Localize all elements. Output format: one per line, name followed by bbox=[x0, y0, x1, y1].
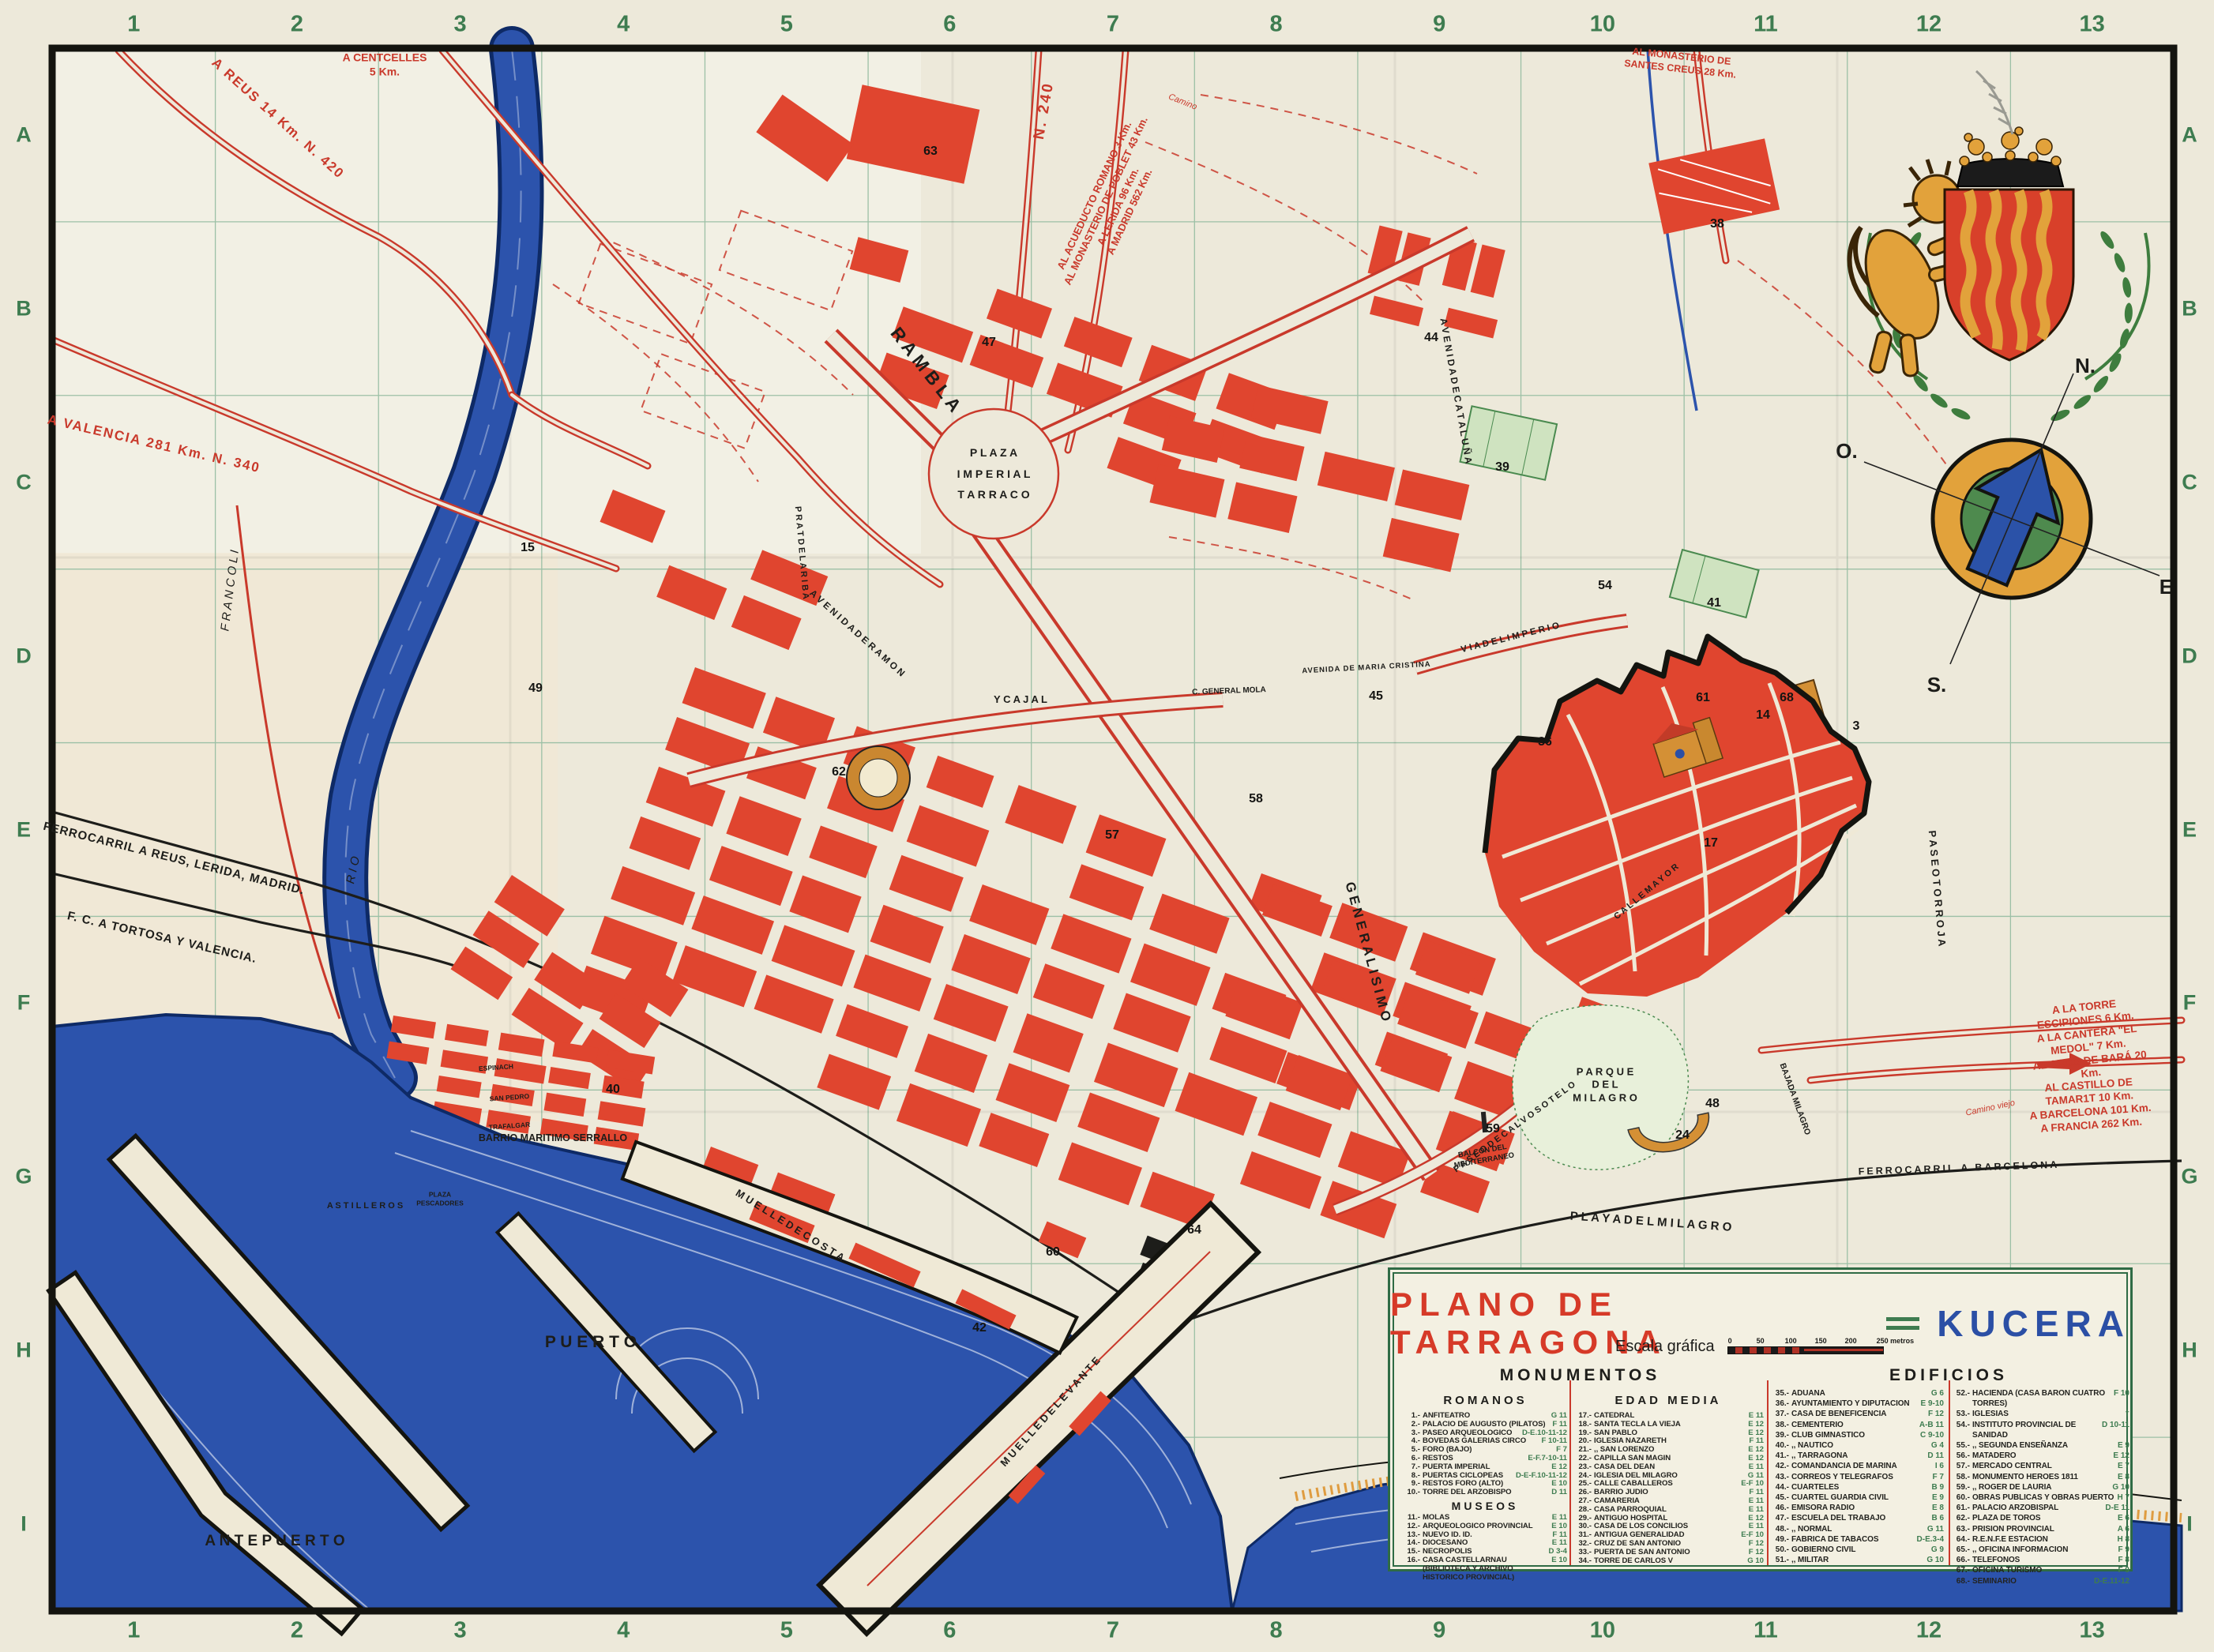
legend-item: 42.-COMANDANCIA DE MARINAI 6 bbox=[1772, 1461, 1944, 1471]
legend-item: 2.-PALACIO DE AUGUSTO (PILATOS)F 11 bbox=[1403, 1421, 1567, 1429]
legend-item-name: SEMINARIO bbox=[1972, 1576, 2091, 1586]
legend-item: 16.-CASA CASTELLARNAU (BIBLIOTECA Y ARCH… bbox=[1403, 1556, 1567, 1582]
legend-item-number: 53.- bbox=[1953, 1409, 1970, 1419]
legend-item-name: TORRE DE CARLOS V bbox=[1594, 1557, 1744, 1566]
legend-item-number: 16.- bbox=[1403, 1556, 1420, 1565]
legend-item-number: 58.- bbox=[1953, 1472, 1970, 1482]
legend-item: 23.-CASA DEL DEANE 11 bbox=[1574, 1463, 1764, 1472]
legend-item: 40.-,, NAUTICOG 4 bbox=[1772, 1440, 1944, 1451]
compass-west-label: O. bbox=[1836, 439, 1857, 463]
legend-item-gridref: G 10 bbox=[1747, 1557, 1764, 1566]
legend-item-number: 38.- bbox=[1772, 1420, 1789, 1430]
legend-item: 57.-MERCADO CENTRALE 7 bbox=[1953, 1461, 2129, 1471]
legend-item-number: 56.- bbox=[1953, 1451, 1970, 1461]
legend-item-number: 67.- bbox=[1953, 1565, 1970, 1575]
scale-tick: 100 bbox=[1785, 1337, 1797, 1345]
legend-item: 35.-ADUANAG 6 bbox=[1772, 1388, 1944, 1399]
column-edad-media: 17.-CATEDRALE 1118.-SANTA TECLA LA VIEJA… bbox=[1574, 1412, 1764, 1565]
legend-item-gridref: E 12 bbox=[1551, 1463, 1567, 1472]
legend-item-number: 37.- bbox=[1772, 1409, 1789, 1419]
legend-item-number: 62.- bbox=[1953, 1513, 1970, 1523]
legend-item: 54.-INSTITUTO PROVINCIAL DE SANIDADD 10-… bbox=[1953, 1420, 2129, 1440]
legend-item-number: 49.- bbox=[1772, 1534, 1789, 1545]
legend-item-gridref: G 6 bbox=[1931, 1388, 1944, 1399]
legend-item-number: 40.- bbox=[1772, 1440, 1789, 1451]
legend-item-gridref: F 12 bbox=[1928, 1409, 1944, 1419]
legend-item-gridref: † bbox=[2125, 1409, 2129, 1419]
legend-item-gridref: D-E.11-12 bbox=[2094, 1576, 2129, 1586]
legend-item-number: 51.- bbox=[1772, 1555, 1789, 1565]
legend-item-gridref: F 10 bbox=[2114, 1388, 2129, 1399]
legend-divider bbox=[1949, 1380, 1950, 1565]
scale-tick: 150 bbox=[1815, 1337, 1827, 1345]
plaza-imperial-circle bbox=[929, 409, 1058, 539]
legend-item-gridref: F 12 bbox=[1749, 1549, 1764, 1557]
legend-item-gridref: E 6 bbox=[2118, 1513, 2129, 1523]
legend-item-gridref: H 7 bbox=[2117, 1492, 2129, 1503]
legend-item-name: PUERTA IMPERIAL bbox=[1423, 1463, 1548, 1472]
legend-item: 38.-CEMENTERIOA-B 11 bbox=[1772, 1420, 1944, 1430]
legend-divider bbox=[1569, 1380, 1571, 1565]
legend-item: 12.-ARQUEOLOGICO PROVINCIALE 10 bbox=[1403, 1522, 1567, 1531]
bullring-icon bbox=[847, 746, 910, 809]
legend-item-gridref: E 10 bbox=[1551, 1556, 1567, 1565]
legend-item: 62.-PLAZA DE TOROSE 6 bbox=[1953, 1513, 2129, 1523]
legend-item: 56.-MATADEROE 12 bbox=[1953, 1451, 2129, 1461]
compass-south-label: S. bbox=[1927, 673, 1947, 696]
legend-item-gridref: B 9 bbox=[1931, 1482, 1944, 1492]
legend-item: 44.-CUARTELESB 9 bbox=[1772, 1482, 1944, 1492]
legend-item-number: 57.- bbox=[1953, 1461, 1970, 1471]
legend-item-name: CASA PARROQUIAL bbox=[1594, 1506, 1746, 1515]
legend-item-name: TELEFONOS bbox=[1972, 1555, 2115, 1565]
legend-item-name: MONUMENTO HEROES 1811 bbox=[1972, 1472, 2114, 1482]
legend-item-number: 43.- bbox=[1772, 1472, 1789, 1482]
legend-item-number: 10.- bbox=[1403, 1489, 1420, 1497]
legend-item: 50.-GOBIERNO CIVILG 9 bbox=[1772, 1545, 1944, 1555]
legend-item-name: ,, TARRAGONA bbox=[1791, 1451, 1924, 1461]
title-kucera: KUCERA bbox=[1937, 1302, 2130, 1345]
legend-item-number: 60.- bbox=[1953, 1492, 1970, 1503]
legend-item-name: COMANDANCIA DE MARINA bbox=[1791, 1461, 1932, 1471]
legend-item: 60.-OBRAS PUBLICAS Y OBRAS PUERTOH 7 bbox=[1953, 1492, 2129, 1503]
legend-item: 47.-ESCUELA DEL TRABAJOB 6 bbox=[1772, 1513, 1944, 1523]
legend-item-number: 28.- bbox=[1574, 1506, 1592, 1515]
legend-item: 18.-SANTA TECLA LA VIEJAE 12 bbox=[1574, 1421, 1764, 1429]
legend-item: 43.-CORREOS Y TELEGRAFOSF 7 bbox=[1772, 1472, 1944, 1482]
legend-item: 67.-OFICINA TURISMOF 9 bbox=[1953, 1565, 2129, 1575]
legend-item-name: CORREOS Y TELEGRAFOS bbox=[1791, 1472, 1930, 1482]
legend-item-number: 59.- bbox=[1953, 1482, 1970, 1492]
legend-item-number: 66.- bbox=[1953, 1555, 1970, 1565]
legend-item-gridref: E 12 bbox=[2113, 1451, 2129, 1461]
column-edificios-a: 35.-ADUANAG 636.-AYUNTAMIENTO Y DIPUTACI… bbox=[1772, 1388, 1944, 1565]
legend-item-name: PLAZA DE TOROS bbox=[1972, 1513, 2114, 1523]
legend-item: 68.-SEMINARIOD-E.11-12 bbox=[1953, 1576, 2129, 1586]
legend-item-number: 50.- bbox=[1772, 1545, 1789, 1555]
legend-item-gridref: E 11 bbox=[1749, 1506, 1764, 1515]
legend-item-name: ,, SEGUNDA ENSEÑANZA bbox=[1972, 1440, 2114, 1451]
legend-item-name: INSTITUTO PROVINCIAL DE SANIDAD bbox=[1972, 1420, 2099, 1440]
legend-item-gridref: D 11 bbox=[1551, 1489, 1567, 1497]
legend-item-name: ,, ROGER DE LAURIA bbox=[1972, 1482, 2109, 1492]
legend-item-name: PALACIO DE AUGUSTO (PILATOS) bbox=[1423, 1421, 1549, 1429]
legend-item: 36.-AYUNTAMIENTO Y DIPUTACIONE 9-10 bbox=[1772, 1399, 1944, 1409]
legend-item-number: 39.- bbox=[1772, 1430, 1789, 1440]
legend-item-number: 47.- bbox=[1772, 1513, 1789, 1523]
legend-item-gridref: E 10 bbox=[1551, 1522, 1567, 1531]
legend-item-number: 65.- bbox=[1953, 1545, 1970, 1555]
header-edad-media: EDAD MEDIA bbox=[1574, 1394, 1762, 1407]
legend-item-gridref: E 12 bbox=[1748, 1421, 1764, 1429]
legend-item: 66.-TELEFONOSF 8 bbox=[1953, 1555, 2129, 1565]
legend-item-gridref: G 9 bbox=[1931, 1545, 1944, 1555]
legend-item: 53.-IGLESIAS† bbox=[1953, 1409, 2129, 1419]
legend-item-name: ADUANA bbox=[1791, 1388, 1928, 1399]
legend-item-number: 52.- bbox=[1953, 1388, 1970, 1399]
legend-item-number: 18.- bbox=[1574, 1421, 1592, 1429]
legend-item: 49.-FABRICA DE TABACOSD-E.3-4 bbox=[1772, 1534, 1944, 1545]
legend-item-number: 48.- bbox=[1772, 1524, 1789, 1534]
legend-item-gridref: G 10 bbox=[2112, 1482, 2129, 1492]
legend-item-name: PUERTA DE SAN ANTONIO bbox=[1594, 1549, 1746, 1557]
legend-item-number: 61.- bbox=[1953, 1503, 1970, 1513]
legend-item: 41.-,, TARRAGONAD 11 bbox=[1772, 1451, 1944, 1461]
legend-item-name: HACIENDA (CASA BARON CUATRO TORRES) bbox=[1972, 1388, 2111, 1409]
legend-item: 64.-R.E.N.F.E ESTACIONH 8 bbox=[1953, 1534, 2129, 1545]
legend-item-gridref: D-E 11 bbox=[2105, 1503, 2129, 1513]
legend-item-name: PRISION PROVINCIAL bbox=[1972, 1524, 2114, 1534]
legend-item: 51.-,, MILITARG 10 bbox=[1772, 1555, 1944, 1565]
legend-item-name: CLUB GIMNASTICO bbox=[1791, 1430, 1917, 1440]
legend-item-number: 64.- bbox=[1953, 1534, 1970, 1545]
legend-item-gridref: D 11 bbox=[1927, 1451, 1944, 1461]
legend-item-name: PALACIO ARZOBISPAL bbox=[1972, 1503, 2102, 1513]
legend-item-number: 36.- bbox=[1772, 1399, 1789, 1409]
legend-item-number: 12.- bbox=[1403, 1522, 1420, 1531]
legend-item-number: 7.- bbox=[1403, 1463, 1420, 1472]
legend-item-name: SANTA TECLA LA VIEJA bbox=[1594, 1421, 1745, 1429]
legend-item-number: 2.- bbox=[1403, 1421, 1420, 1429]
legend-item-name: ,, MILITAR bbox=[1791, 1555, 1923, 1565]
legend-item-name: CASA CASTELLARNAU (BIBLIOTECA Y ARCHIVO … bbox=[1423, 1556, 1548, 1582]
legend-item-gridref: F 7 bbox=[1933, 1472, 1944, 1482]
legend-item-gridref: I 6 bbox=[1935, 1461, 1944, 1471]
legend-item-name: FABRICA DE TABACOS bbox=[1791, 1534, 1914, 1545]
legend-item-number: 63.- bbox=[1953, 1524, 1970, 1534]
legend-item: 63.-PRISION PROVINCIALA 6 bbox=[1953, 1524, 2129, 1534]
legend-item-name: GOBIERNO CIVIL bbox=[1791, 1545, 1928, 1555]
legend-item-number: 46.- bbox=[1772, 1503, 1789, 1513]
legend-item: 65.-,, OFICINA INFORMACIONF 9 bbox=[1953, 1545, 2129, 1555]
legend-panel: PLANO DE TARRAGONA KUCERA Escala gráfica… bbox=[1388, 1267, 2133, 1571]
legend-item: 52.-HACIENDA (CASA BARON CUATRO TORRES)F… bbox=[1953, 1388, 2129, 1409]
legend-item-name: OFICINA TURISMO bbox=[1972, 1565, 2115, 1575]
legend-item: 34.-TORRE DE CARLOS VG 10 bbox=[1574, 1557, 1764, 1566]
legend-item-number: 68.- bbox=[1953, 1576, 1970, 1586]
legend-item-gridref: G 11 bbox=[1927, 1524, 1944, 1534]
legend-item-gridref: E 9 bbox=[1932, 1492, 1944, 1503]
legend-item-gridref: A 6 bbox=[2118, 1524, 2129, 1534]
scale-label: Escala gráfica bbox=[1615, 1338, 1715, 1356]
legend-item: 7.-PUERTA IMPERIALE 12 bbox=[1403, 1463, 1567, 1472]
legend-item-name: CUARTEL GUARDIA CIVIL bbox=[1791, 1492, 1929, 1503]
legend-item: 58.-MONUMENTO HEROES 1811E 8 bbox=[1953, 1472, 2129, 1482]
scale-tick: 0 bbox=[1728, 1337, 1732, 1345]
legend-item-name: MATADERO bbox=[1972, 1451, 2110, 1461]
legend-item-name: ,, NAUTICO bbox=[1791, 1440, 1928, 1451]
legend-item-gridref: C 9-10 bbox=[1920, 1430, 1944, 1440]
legend-item-gridref: E 7 bbox=[2118, 1461, 2129, 1471]
legend-item: 59.-,, ROGER DE LAURIAG 10 bbox=[1953, 1482, 2129, 1492]
legend-item-number: 45.- bbox=[1772, 1492, 1789, 1503]
feather-icon bbox=[1976, 71, 2013, 134]
legend-item: 45.-CUARTEL GUARDIA CIVILE 9 bbox=[1772, 1492, 1944, 1503]
legend-item-gridref: D 10-11 bbox=[2102, 1420, 2129, 1430]
legend-item-name: ,, OFICINA INFORMACION bbox=[1972, 1545, 2115, 1555]
scale-tick: 200 bbox=[1845, 1337, 1857, 1345]
legend-item-gridref: F 8 bbox=[2118, 1555, 2129, 1565]
legend-item-name: MERCADO CENTRAL bbox=[1972, 1461, 2114, 1471]
scale-bar: Escala gráfica 0 50 100 150 200 250 metr… bbox=[1615, 1338, 1884, 1356]
legend-item-number: 55.- bbox=[1953, 1440, 1970, 1451]
legend-item-name: TORRE DEL ARZOBISPO bbox=[1423, 1489, 1548, 1497]
title-dash-icon bbox=[1886, 1317, 1919, 1330]
legend-item-name: ESCUELA DEL TRABAJO bbox=[1791, 1513, 1928, 1523]
legend-item-name: R.E.N.F.E ESTACION bbox=[1972, 1534, 2114, 1545]
legend-item: 37.-CASA DE BENEFICENCIAF 12 bbox=[1772, 1409, 1944, 1419]
legend-item-gridref: G 10 bbox=[1926, 1555, 1944, 1565]
legend-item: 10.-TORRE DEL ARZOBISPOD 11 bbox=[1403, 1489, 1567, 1497]
legend-item-name: IGLESIAS bbox=[1972, 1409, 2122, 1419]
legend-item-name: AYUNTAMIENTO Y DIPUTACION bbox=[1791, 1399, 1918, 1409]
legend-divider bbox=[1767, 1380, 1769, 1565]
legend-item-name: CASA DEL DEAN bbox=[1594, 1463, 1746, 1472]
scale-bar-graphic: 0 50 100 150 200 250 metros bbox=[1727, 1346, 1884, 1354]
compass-rose: N. O. E. S. bbox=[1836, 354, 2178, 696]
legend-item: 46.-EMISORA RADIOE 8 bbox=[1772, 1503, 1944, 1513]
legend-item-gridref: F 9 bbox=[2118, 1545, 2129, 1555]
legend-item-number: 33.- bbox=[1574, 1549, 1592, 1557]
map-sheet: N. O. E. S. 1122334455667788991010111112… bbox=[0, 0, 2214, 1652]
legend-item-name: EMISORA RADIO bbox=[1791, 1503, 1929, 1513]
legend-item-number: 41.- bbox=[1772, 1451, 1789, 1461]
coat-of-arms bbox=[1850, 71, 2149, 423]
legend-item: 28.-CASA PARROQUIALE 11 bbox=[1574, 1506, 1764, 1515]
legend-item-number: 23.- bbox=[1574, 1463, 1592, 1472]
header-romanos: ROMANOS bbox=[1404, 1394, 1566, 1407]
legend-item-gridref: H 8 bbox=[2117, 1534, 2129, 1545]
legend-item-gridref: F 11 bbox=[1552, 1421, 1567, 1429]
scale-tick: 250 metros bbox=[1877, 1337, 1915, 1345]
legend-item-number: 54.- bbox=[1953, 1420, 1970, 1430]
legend-item-number: 42.- bbox=[1772, 1461, 1789, 1471]
legend-item-gridref: E 8 bbox=[2118, 1472, 2129, 1482]
scale-tick: 50 bbox=[1757, 1337, 1765, 1345]
legend-item-name: CEMENTERIO bbox=[1791, 1420, 1916, 1430]
legend-item: 55.-,, SEGUNDA ENSEÑANZAE 9 bbox=[1953, 1440, 2129, 1451]
legend-item-gridref: E 9-10 bbox=[1921, 1399, 1944, 1409]
legend-item-gridref: A-B 11 bbox=[1919, 1420, 1944, 1430]
column-romanos-museos: 1.-ANFITEATROG 112.-PALACIO DE AUGUSTO (… bbox=[1403, 1412, 1567, 1582]
legend-item-name: CASA DE BENEFICENCIA bbox=[1791, 1409, 1925, 1419]
header-monumentos: MONUMENTOS bbox=[1404, 1366, 1756, 1385]
legend-item-number: 44.- bbox=[1772, 1482, 1789, 1492]
legend-item-name: OBRAS PUBLICAS Y OBRAS PUERTO bbox=[1972, 1492, 2114, 1503]
legend-item-gridref: F 9 bbox=[2118, 1565, 2129, 1575]
legend-item-gridref: E 11 bbox=[1749, 1463, 1764, 1472]
legend-item-gridref: D-E.3-4 bbox=[1917, 1534, 1944, 1545]
legend-item: 61.-PALACIO ARZOBISPALD-E 11 bbox=[1953, 1503, 2129, 1513]
legend-item-gridref: G 4 bbox=[1931, 1440, 1944, 1451]
legend-item-gridref: B 6 bbox=[1931, 1513, 1944, 1523]
legend-item: 33.-PUERTA DE SAN ANTONIOF 12 bbox=[1574, 1549, 1764, 1557]
legend-item-gridref: E 8 bbox=[1932, 1503, 1944, 1513]
compass-north-label: N. bbox=[2075, 354, 2096, 377]
legend-item-name: ,, NORMAL bbox=[1791, 1524, 1924, 1534]
legend-item-name: CUARTELES bbox=[1791, 1482, 1928, 1492]
legend-item-gridref: E 9 bbox=[2118, 1440, 2129, 1451]
column-edificios-b: 52.-HACIENDA (CASA BARON CUATRO TORRES)F… bbox=[1953, 1388, 2129, 1586]
legend-item: 39.-CLUB GIMNASTICOC 9-10 bbox=[1772, 1430, 1944, 1440]
header-museos: MUSEOS bbox=[1403, 1500, 1567, 1512]
legend-item: 48.-,, NORMALG 11 bbox=[1772, 1524, 1944, 1534]
legend-item-name: ARQUEOLOGICO PROVINCIAL bbox=[1423, 1522, 1548, 1531]
legend-item-number: 34.- bbox=[1574, 1557, 1592, 1566]
legend-item-number: 35.- bbox=[1772, 1388, 1789, 1399]
shield-icon bbox=[1945, 190, 2073, 360]
